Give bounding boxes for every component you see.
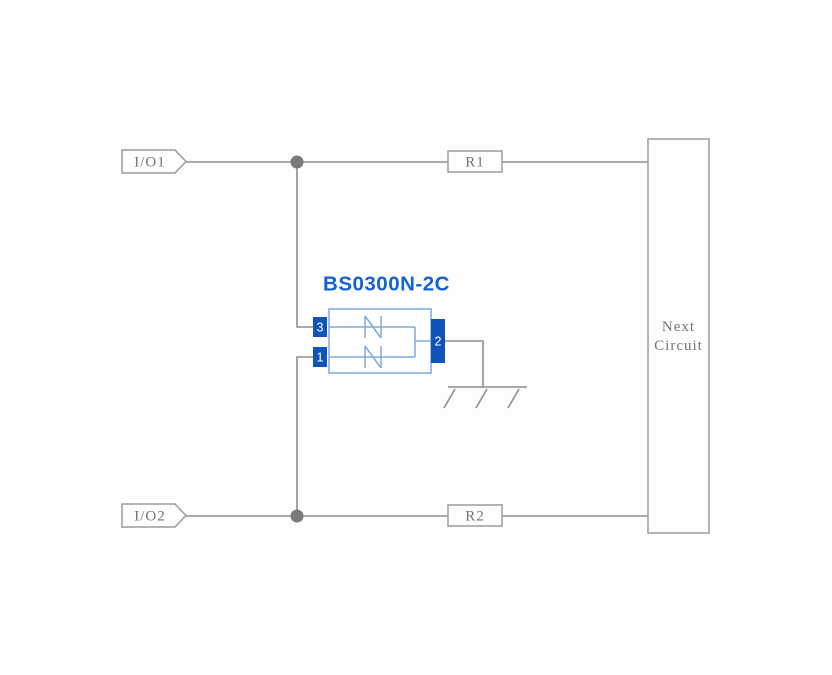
next-circuit-label-line1: Next xyxy=(662,319,695,335)
resistor-r2: R2 xyxy=(448,505,502,526)
pin2-number: 2 xyxy=(435,335,442,349)
component-title: BS0300N-2C xyxy=(323,273,450,296)
pin-2: 2 xyxy=(431,319,445,363)
junction-dot-top xyxy=(291,156,304,169)
tvs-component: BS0300N-2C 3 xyxy=(313,273,450,374)
junction-dot-bottom xyxy=(291,510,304,523)
next-circuit-box xyxy=(648,139,709,533)
io1-tag: I/O1 xyxy=(122,150,186,173)
wire-junction-to-pin3 xyxy=(297,162,313,327)
io2-tag-label: I/O2 xyxy=(134,509,166,525)
ground-hash-3 xyxy=(508,389,519,408)
circuit-diagram: I/O1 I/O2 R1 R2 Next Circuit BS0300N-2C xyxy=(0,0,832,675)
ground-icon xyxy=(444,387,527,408)
next-circuit-label-line2: Circuit xyxy=(654,338,703,354)
wire-pin2-to-ground xyxy=(445,341,483,387)
r2-label: R2 xyxy=(465,509,485,525)
pin-3: 3 xyxy=(313,317,327,337)
resistor-r1: R1 xyxy=(448,151,502,172)
r1-label: R1 xyxy=(465,155,485,171)
ground-hash-1 xyxy=(444,389,455,408)
schematic-canvas: I/O1 I/O2 R1 R2 Next Circuit BS0300N-2C xyxy=(0,0,832,675)
ground-hash-2 xyxy=(476,389,487,408)
pin-1: 1 xyxy=(313,347,327,367)
next-circuit-block: Next Circuit xyxy=(648,139,709,533)
io2-tag: I/O2 xyxy=(122,504,186,527)
pin3-number: 3 xyxy=(317,321,324,335)
pin1-number: 1 xyxy=(317,351,324,365)
io1-tag-label: I/O1 xyxy=(134,155,166,171)
wire-pin1-to-junction xyxy=(297,357,313,516)
